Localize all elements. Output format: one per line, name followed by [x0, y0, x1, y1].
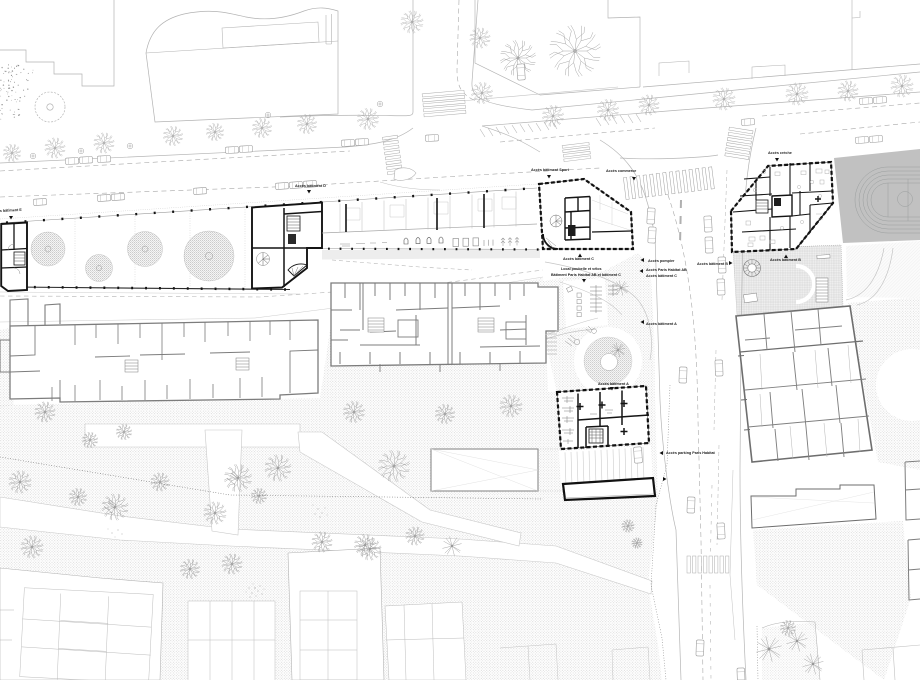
svg-text:Accès bâtiment C: Accès bâtiment C — [646, 274, 677, 278]
svg-text:Accès crèche: Accès crèche — [768, 151, 792, 155]
svg-text:Accès pompier: Accès pompier — [648, 259, 675, 263]
svg-text:Accès bâtiment C: Accès bâtiment C — [563, 257, 594, 261]
svg-text:Accès Paris Habitat AB: Accès Paris Habitat AB — [646, 268, 687, 272]
svg-text:Accès parking Paris Habitat: Accès parking Paris Habitat — [666, 451, 716, 455]
svg-text:Accès bâtiment A: Accès bâtiment A — [646, 322, 677, 326]
svg-text:Accès bâtiment B: Accès bâtiment B — [770, 258, 801, 262]
svg-text:Bâtiment Paris Habitat AB et b: Bâtiment Paris Habitat AB et bâtiment C — [551, 273, 621, 277]
svg-text:Accès bâtiment B: Accès bâtiment B — [697, 262, 728, 266]
svg-text:Local poubelle et vélos: Local poubelle et vélos — [561, 267, 602, 271]
svg-text:Accès bâtiment A: Accès bâtiment A — [598, 382, 629, 386]
svg-text:Accès bâtiment D: Accès bâtiment D — [295, 184, 326, 188]
svg-text:Accès commerce: Accès commerce — [606, 169, 636, 173]
svg-text:Accès bâtiment Sport: Accès bâtiment Sport — [531, 168, 570, 172]
